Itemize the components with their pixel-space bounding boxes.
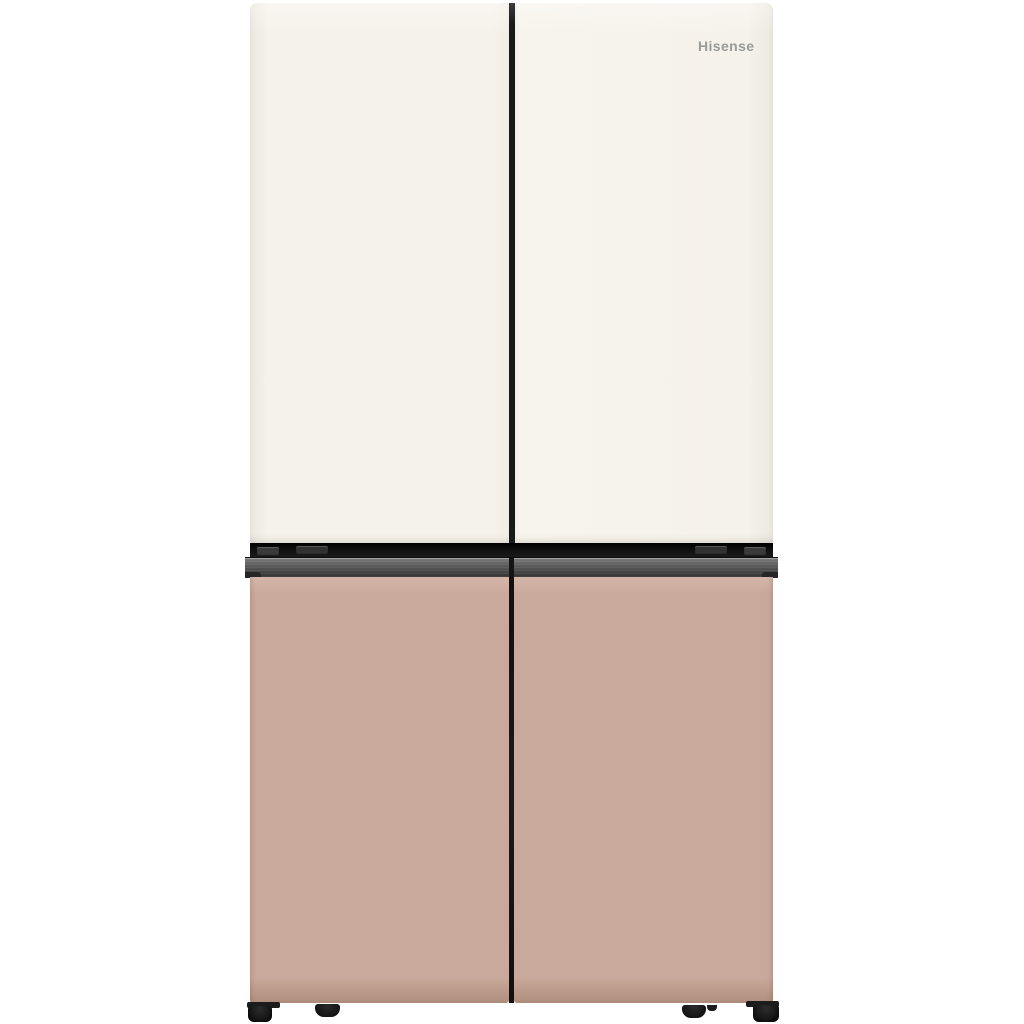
right-hinge-cover: [695, 546, 727, 555]
upper-doors: Hisense: [250, 3, 773, 545]
left-adjustable-foot: [248, 1006, 272, 1022]
product-photo: Hisense: [0, 0, 1024, 1024]
upper-right-door: [515, 3, 773, 545]
lower-center-seam: [509, 577, 514, 1003]
lower-doors: [250, 577, 773, 1003]
upper-left-door: [250, 3, 511, 545]
left-hinge-cover: [296, 546, 328, 555]
brand-logo: Hisense: [698, 39, 768, 54]
right-roller-foot: [682, 1005, 706, 1018]
left-roller-foot: [315, 1004, 340, 1017]
upper-center-seam: [509, 3, 515, 545]
metal-trim-band: [245, 557, 778, 578]
refrigerator: Hisense: [250, 3, 773, 1022]
right-foot-tab: [707, 1005, 717, 1011]
left-hinge-icon: [257, 547, 279, 556]
lower-left-door: [250, 577, 509, 1003]
band-center-seam: [509, 558, 514, 578]
right-hinge-icon: [744, 547, 766, 556]
lower-right-door: [514, 577, 773, 1003]
right-adjustable-foot: [753, 1005, 779, 1022]
